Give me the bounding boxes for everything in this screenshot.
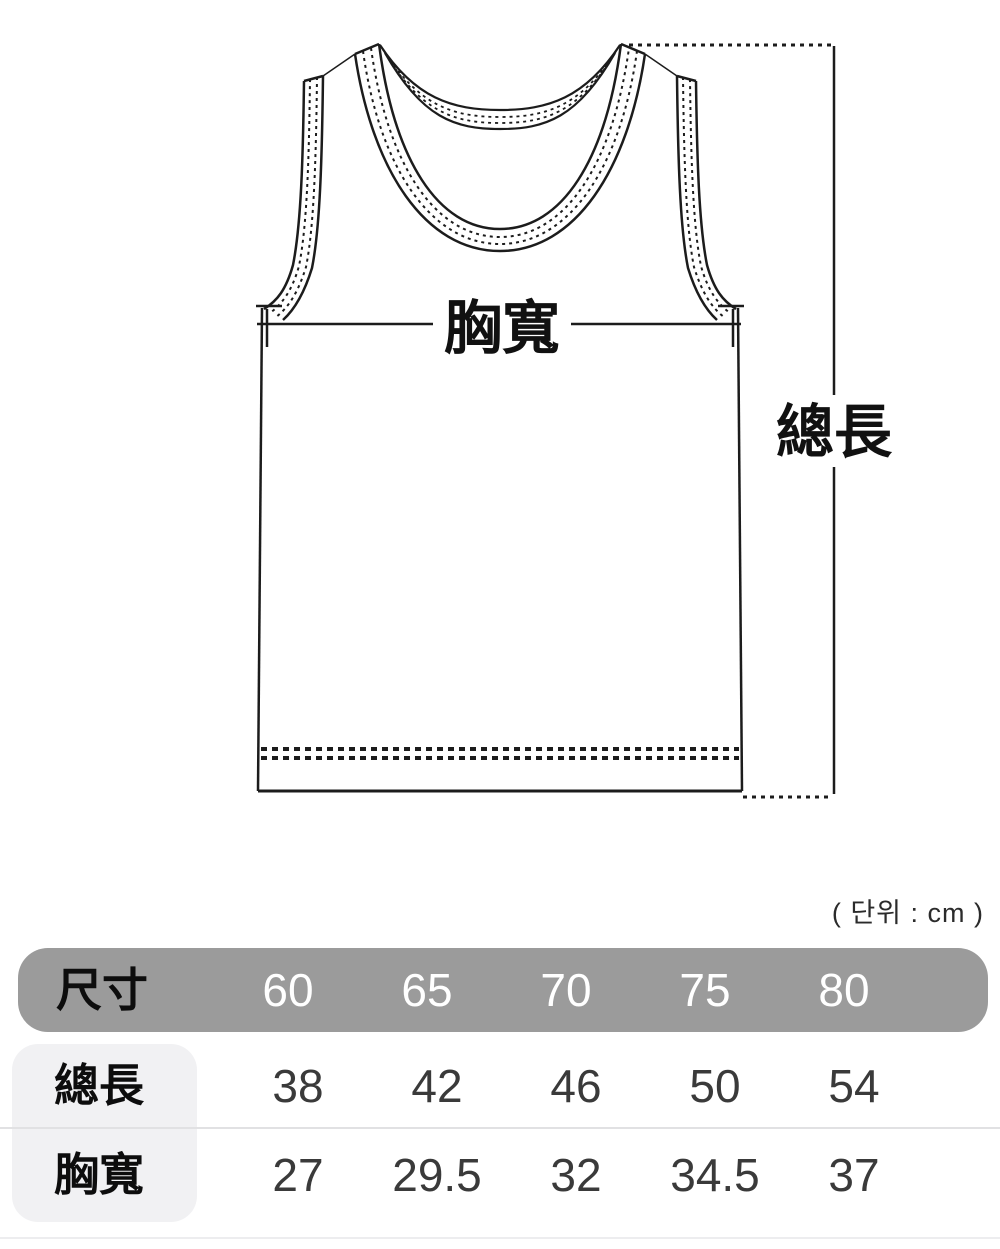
left-shoulder-edge [323, 54, 355, 76]
left-side-seam [258, 308, 262, 791]
chest-width-value-70: 32 [516, 1128, 636, 1222]
tank-top-diagram: 胸寬 總長 [0, 0, 1000, 875]
table-header-size-label: 尺寸 [56, 948, 148, 1032]
size-column-80: 80 [794, 948, 894, 1032]
back-neck-stitch-1 [382, 48, 618, 117]
row-chest-width-label: 胸寬 [54, 1128, 144, 1222]
unit-note: ( 단위 : cm ) [832, 891, 984, 930]
chest-width-value-60: 27 [238, 1128, 358, 1222]
left-armhole-outer [264, 81, 304, 309]
front-neckline-inner [379, 44, 621, 229]
left-armhole-stitch-2 [276, 77, 317, 317]
right-side-seam [738, 308, 742, 791]
chest-width-value-80: 37 [794, 1128, 914, 1222]
left-strap-top-edge [304, 76, 323, 81]
size-chart-sheet: 胸寬 總長 ( 단위 : cm ) 尺寸 60 65 70 75 80 總長 3… [0, 0, 1000, 1249]
back-neckline-lower [385, 53, 615, 129]
total-length-value-80: 54 [794, 1044, 914, 1128]
total-length-value-75: 50 [655, 1044, 775, 1128]
size-column-75: 75 [655, 948, 755, 1032]
size-column-65: 65 [377, 948, 477, 1032]
total-length-label: 總長 [776, 400, 893, 465]
chest-width-label: 胸寬 [444, 296, 560, 361]
chest-width-value-65: 29.5 [377, 1128, 497, 1222]
right-strap-top-edge [677, 76, 696, 81]
right-armhole-stitch-2 [683, 77, 724, 317]
chest-width-value-75: 34.5 [655, 1128, 775, 1222]
front-neck-stitch-2 [371, 48, 629, 237]
bottom-divider-line [0, 1237, 1000, 1239]
front-neckline-outer [355, 54, 645, 251]
right-shoulder-edge [645, 54, 677, 76]
total-length-value-70: 46 [516, 1044, 636, 1128]
left-neck-top-edge [355, 44, 379, 54]
total-length-value-65: 42 [377, 1044, 497, 1128]
back-neckline-upper [380, 45, 620, 110]
total-length-value-60: 38 [238, 1044, 358, 1128]
size-column-70: 70 [516, 948, 616, 1032]
size-column-60: 60 [238, 948, 338, 1032]
row-total-length-label: 總長 [54, 1044, 144, 1128]
right-armhole-outer [696, 81, 736, 309]
